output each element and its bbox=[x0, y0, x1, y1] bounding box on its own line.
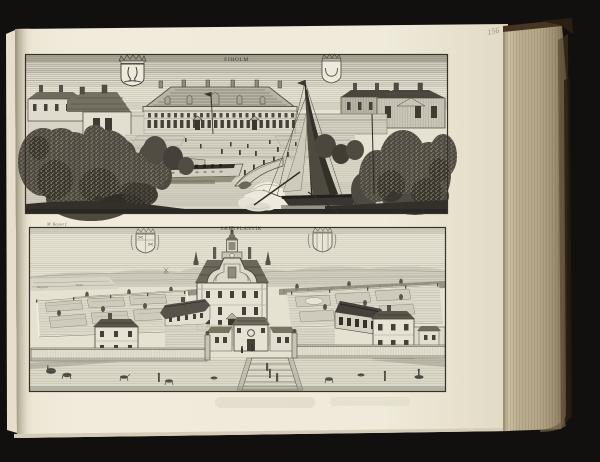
svg-text:FIHOLM: FIHOLM bbox=[224, 57, 249, 63]
svg-text:Kroki.: Kroki. bbox=[75, 283, 84, 287]
svg-text:Magistra.: Magistra. bbox=[36, 285, 49, 289]
svg-text:M. Keyser f.: M. Keyser f. bbox=[46, 222, 67, 227]
